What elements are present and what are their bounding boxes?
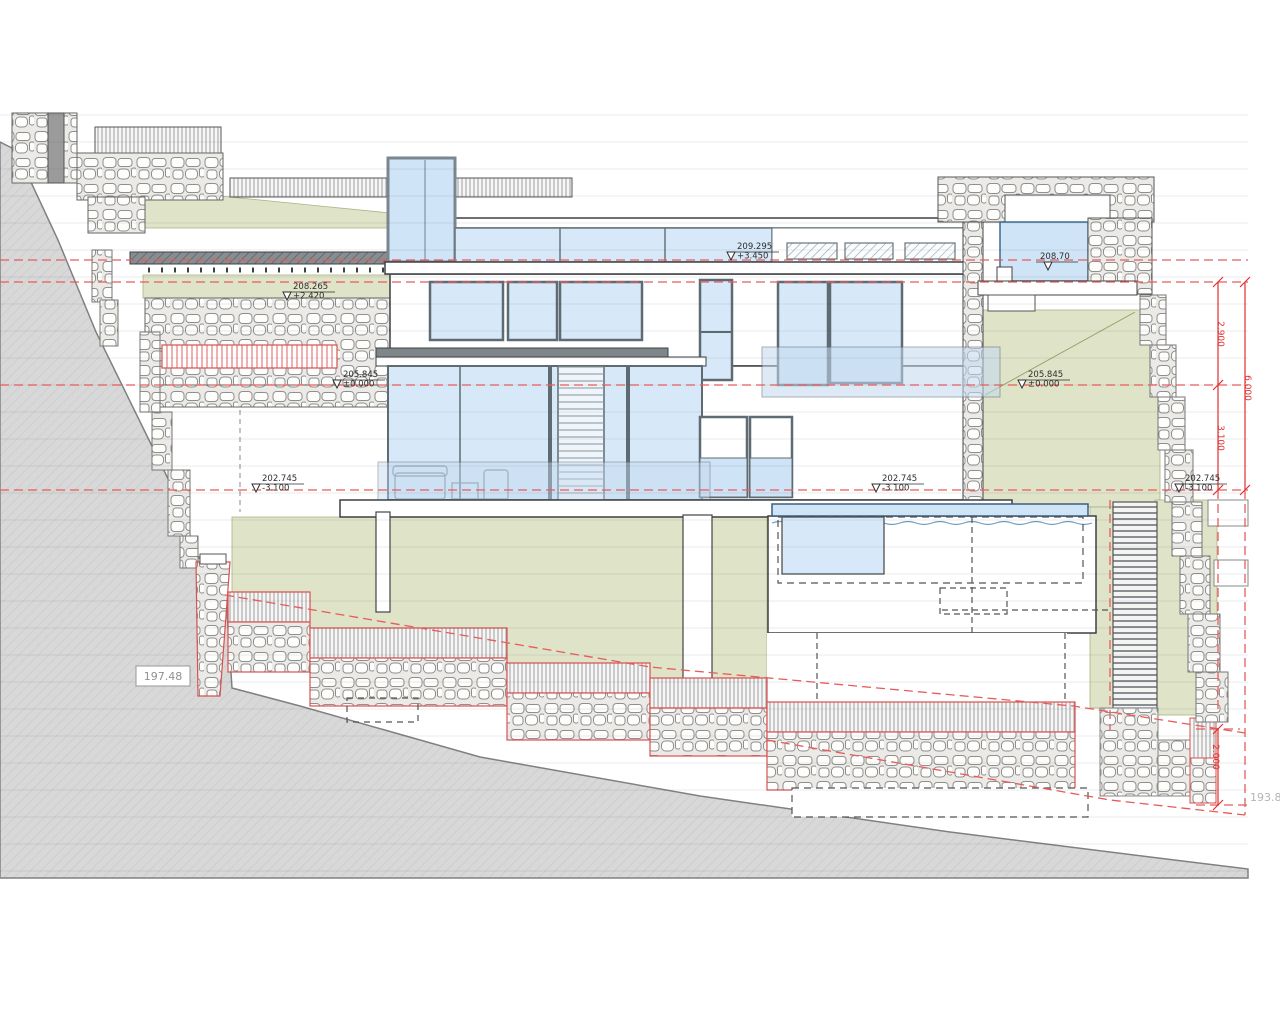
pier-wall-left	[376, 512, 390, 612]
stone-wall-2	[88, 197, 145, 233]
pool-water-section	[782, 517, 884, 574]
svg-text:-3.100: -3.100	[1185, 484, 1212, 494]
roof-vents-hatched	[787, 243, 955, 259]
svg-text:197.48: 197.48	[144, 670, 183, 683]
pool-water-surface	[772, 504, 1088, 516]
terrace-green-right	[983, 310, 1160, 507]
wall-fence-2	[310, 628, 507, 658]
stone-pier-dark	[48, 113, 64, 183]
stone-block-top-left	[12, 113, 77, 183]
edge-planter-2	[1214, 560, 1248, 586]
svg-text:±0.000: ±0.000	[343, 380, 374, 390]
svg-text:-3.100: -3.100	[882, 484, 909, 494]
wall-fence-5	[767, 702, 1075, 732]
wall-stone-4	[650, 708, 767, 756]
foundation-dashed-right	[792, 788, 1088, 817]
upper-floor-slab	[385, 262, 965, 274]
buttress-cap	[200, 554, 226, 564]
canopy-slab-dark	[376, 348, 668, 357]
svg-text:+3.450: +3.450	[737, 252, 768, 262]
wall-stone-6	[1100, 708, 1158, 796]
svg-text:209.295: 209.295	[737, 242, 772, 252]
svg-text:202.745: 202.745	[1185, 474, 1220, 484]
wall-stone-3	[507, 693, 650, 740]
section-canvas: 2.900 3.100 6.000 2.000 209.295 +3.450 2…	[0, 0, 1280, 1024]
architectural-section-drawing: 2.900 3.100 6.000 2.000 209.295 +3.450 2…	[0, 0, 1280, 1024]
infinity-pool	[767, 504, 1110, 703]
stone-wall-1	[77, 153, 223, 200]
villa-section	[376, 158, 1000, 512]
dimension-lower-storey: 3.100	[1215, 425, 1225, 451]
fence-band-1	[95, 127, 221, 153]
svg-text:202.745: 202.745	[882, 474, 917, 484]
dimension-upper-storey: 2.900	[1215, 321, 1225, 347]
svg-text:208.265: 208.265	[293, 282, 328, 292]
upper-pool-step	[997, 267, 1012, 281]
wall-fence-3	[507, 663, 650, 693]
deck-planting-strip	[143, 275, 390, 298]
pool-base-step	[988, 295, 1035, 311]
wall-stone-6b	[1158, 740, 1192, 796]
dimension-total-height: 6.000	[1242, 375, 1252, 401]
clerestory-glazing	[455, 228, 772, 262]
wall-stone-5	[767, 732, 1075, 790]
svg-text:208.70: 208.70	[1040, 252, 1070, 262]
svg-text:202.745: 202.745	[262, 474, 297, 484]
dimension-bottom-wall: 2.000	[1210, 744, 1220, 770]
skylight-box	[388, 158, 455, 262]
balustrade-upper-glass	[762, 347, 1000, 397]
balustrade-lower-glass	[378, 462, 710, 503]
svg-text:205.845: 205.845	[1028, 370, 1063, 380]
wall-stone-1	[228, 622, 310, 672]
outdoor-stair-right	[1113, 502, 1157, 708]
spot-level-terrain-right: 193.8	[1250, 791, 1280, 804]
svg-text:±0.000: ±0.000	[1028, 380, 1059, 390]
edge-planter-1	[1208, 500, 1248, 526]
under-pool-void	[767, 633, 1067, 703]
svg-text:205.845: 205.845	[343, 370, 378, 380]
svg-text:+2.420: +2.420	[293, 292, 324, 302]
svg-text:-3.100: -3.100	[262, 484, 289, 494]
pool-base-slab	[978, 281, 1137, 295]
railing-red-hatch	[162, 345, 337, 368]
spot-level-terrain-left: 197.48	[136, 666, 190, 686]
lower-windows-right	[700, 417, 792, 497]
